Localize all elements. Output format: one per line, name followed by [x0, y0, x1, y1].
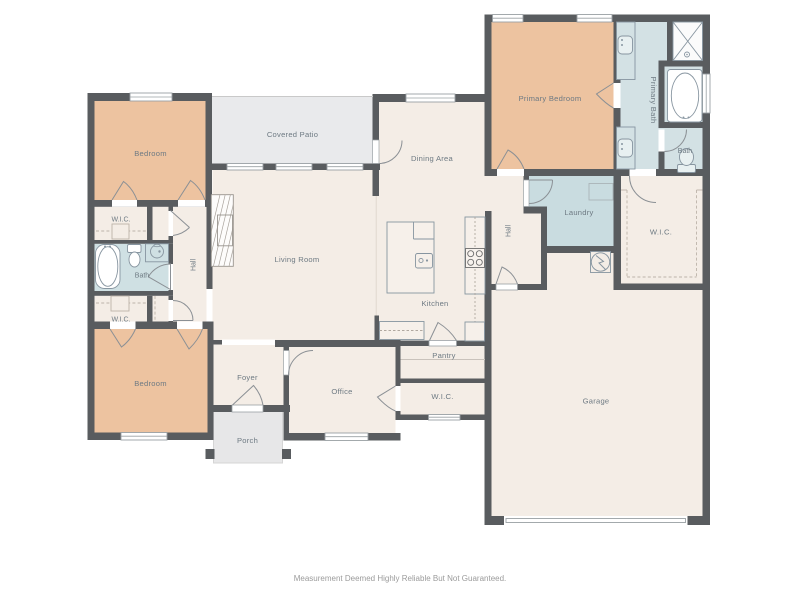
svg-text:Bath: Bath — [678, 148, 693, 155]
svg-text:Dining Area: Dining Area — [411, 154, 454, 163]
svg-text:Covered Patio: Covered Patio — [267, 130, 318, 139]
svg-text:W.I.C.: W.I.C. — [111, 217, 130, 224]
svg-text:Porch: Porch — [237, 436, 258, 445]
svg-text:Garage: Garage — [583, 397, 610, 406]
svg-text:Primary Bath: Primary Bath — [649, 77, 658, 124]
svg-text:Kitchen: Kitchen — [421, 299, 448, 308]
svg-text:W.I.C.: W.I.C. — [111, 317, 130, 324]
svg-text:Primary Bedroom: Primary Bedroom — [519, 94, 582, 103]
svg-text:Bedroom: Bedroom — [134, 149, 167, 158]
svg-text:Office: Office — [331, 387, 352, 396]
svg-text:Bedroom: Bedroom — [134, 379, 167, 388]
svg-text:Hall: Hall — [191, 259, 198, 272]
svg-text:Foyer: Foyer — [237, 373, 258, 382]
svg-text:Hall: Hall — [506, 225, 513, 238]
svg-text:W.I.C.: W.I.C. — [431, 392, 453, 401]
svg-text:Measurement Deemed Highly Reli: Measurement Deemed Highly Reliable But N… — [294, 574, 507, 583]
svg-text:Living Room: Living Room — [275, 255, 320, 264]
svg-text:Pantry: Pantry — [432, 351, 455, 360]
svg-text:Laundry: Laundry — [564, 208, 593, 217]
svg-text:Bath: Bath — [135, 273, 150, 280]
svg-text:W.I.C.: W.I.C. — [650, 228, 672, 237]
